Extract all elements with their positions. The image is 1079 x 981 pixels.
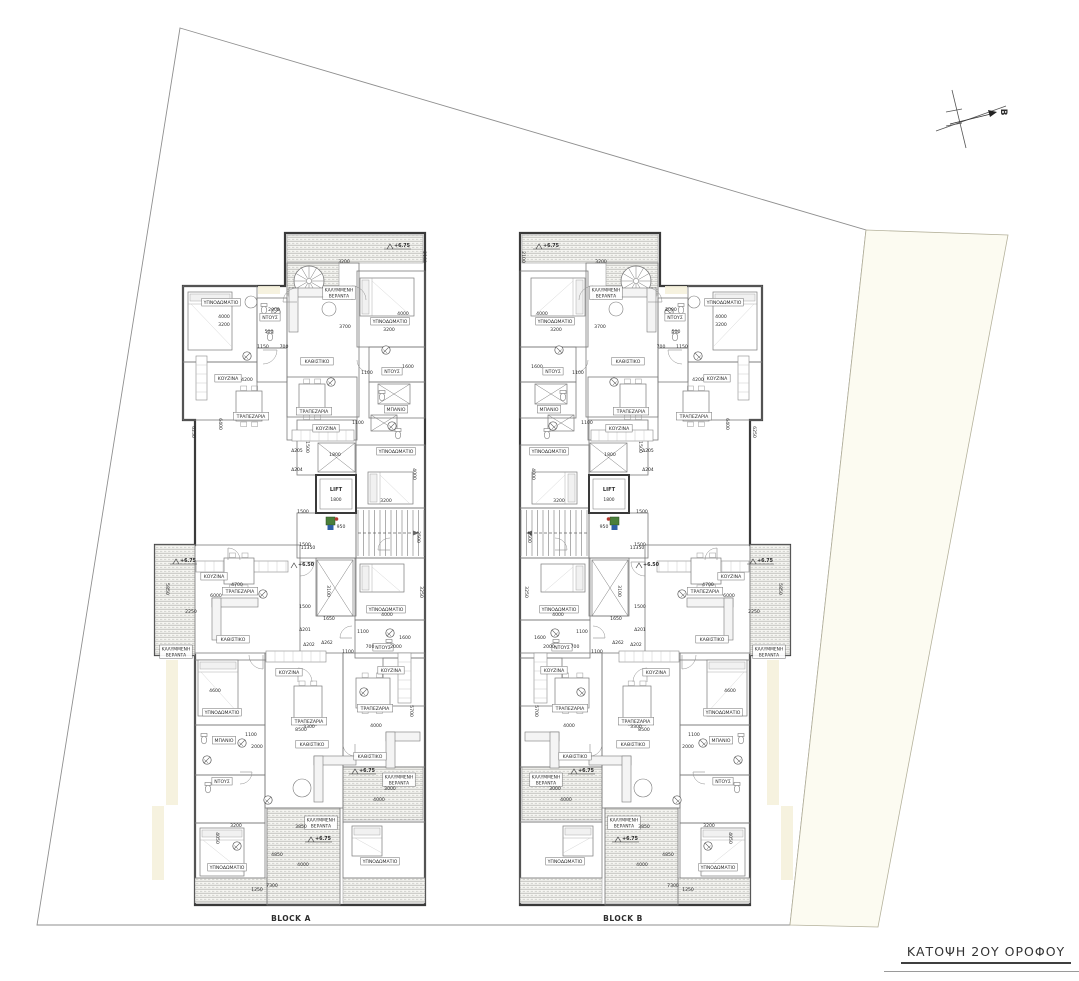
level-text: +6.75	[543, 243, 559, 249]
dimension-text: 4600	[724, 688, 736, 694]
dimension-text: 1150	[676, 344, 688, 350]
veranda-label: ΚΑΛΥΜΜΕΝΗ	[307, 818, 336, 824]
reference-mark: Δ201	[299, 627, 311, 633]
dimension-text: 3200	[703, 823, 715, 829]
room-label: ΝΤΟΥΣ	[667, 315, 683, 321]
wc-fixture	[201, 736, 206, 744]
dimension-text: 4700	[702, 582, 714, 588]
dimension-text: 3200	[230, 823, 242, 829]
veranda-label: ΚΑΛΥΜΜΕΝΗ	[610, 818, 639, 824]
veranda-label: ΒΕΡΑΝΤΑ	[329, 294, 349, 300]
reference-mark: Δ202	[630, 642, 642, 648]
room-label: ΝΤΟΥΣ	[375, 645, 391, 651]
dimension-text: 1500	[636, 509, 648, 515]
dimension-text: 1250	[682, 887, 694, 893]
veranda-label: ΚΑΛΥΜΜΕΝΗ	[532, 775, 561, 781]
room-label: ΥΠΝΟΔΩΜΑΤΙΟ	[204, 710, 240, 716]
room-label: ΝΤΟΥΣ	[554, 645, 570, 651]
dimension-text: 3850	[638, 824, 650, 830]
dimension-text: 1600	[531, 364, 543, 370]
kitchen-counter	[398, 653, 411, 703]
dimension-text: 3300	[303, 724, 315, 730]
reference-mark: Δ205	[642, 448, 654, 454]
wc-fixture	[544, 431, 549, 439]
room-label: ΚΑΘΙΣΤΙΚΟ	[621, 742, 646, 748]
accent-panel	[665, 286, 687, 294]
wc-fixture	[738, 736, 743, 744]
dimension-text: 3300	[630, 724, 642, 730]
room-label: ΥΠΝΟΔΩΜΑΤΙΟ	[378, 449, 414, 455]
room-label: ΚΟΥΖΙΝΑ	[721, 574, 742, 580]
dimension-text: 1650	[323, 616, 335, 622]
level-text: +6.75	[757, 558, 773, 564]
dimension-text: 3200	[383, 327, 395, 333]
dimension-text: 4000	[560, 797, 572, 803]
dimension-text: 4050	[727, 832, 733, 844]
level-text: +6.75	[394, 243, 410, 249]
wc-fixture	[734, 785, 739, 793]
dimension-text: 2500	[526, 531, 532, 543]
wc-fixture	[560, 393, 565, 401]
dimension-text: 1500	[304, 441, 310, 453]
dimension-text: 1150	[257, 344, 269, 350]
dimension-text: 4200	[241, 377, 253, 383]
dimension-text: 1500	[299, 604, 311, 610]
dimension-text: 5700	[408, 705, 414, 717]
room-label: ΚΟΥΖΙΝΑ	[646, 670, 667, 676]
level-text: +6.75	[578, 768, 594, 774]
room-label: ΥΠΝΟΔΩΜΑΤΙΟ	[706, 300, 742, 306]
floor-plan-canvas: ΒΥΠΝΟΔΩΜΑΤΙΟΥΠΝΟΔΩΜΑΤΙΟΥΠΝΟΔΩΜΑΤΙΟΥΠΝΟΔΩ…	[0, 0, 1079, 981]
room-label: ΥΠΝΟΔΩΜΑΤΙΟ	[209, 865, 245, 871]
accent-panel	[166, 660, 178, 805]
room-label: ΥΠΝΟΔΩΜΑΤΙΟ	[547, 859, 583, 865]
north-arrow: Β	[936, 90, 1008, 148]
kitchen-counter	[738, 356, 749, 400]
dimension-text: 7300	[667, 883, 679, 889]
dimension-text: 1100	[352, 420, 364, 426]
dining-table	[623, 686, 651, 720]
block-b-label: BLOCK B	[603, 914, 643, 923]
veranda-hatch	[520, 878, 602, 903]
drawing-title-text: ΚΑΤΟΨΗ 2ΟΥ ΟΡΟΦΟΥ	[901, 944, 1071, 964]
dimension-text: 6250	[751, 426, 757, 438]
dimension-text: 3200	[338, 259, 350, 265]
dimension-text: 6400	[217, 418, 223, 430]
dimension-text: 1600	[399, 635, 411, 641]
dimension-text: 1500	[634, 604, 646, 610]
dimension-text: 6000	[723, 593, 735, 599]
dimension-text: 3250	[418, 586, 424, 598]
dimension-text: 1250	[251, 887, 263, 893]
dimension-text: 1100	[688, 732, 700, 738]
room-label: ΤΡΑΠΕΖΑΡΙΑ	[679, 414, 709, 420]
dimension-text: 4000	[397, 311, 409, 317]
dimension-text: 4000	[218, 314, 230, 320]
dimension-text: 4200	[692, 377, 704, 383]
block-a-label: BLOCK A	[271, 914, 311, 923]
dimension-text: 1100	[361, 370, 373, 376]
dimension-text: 700	[366, 644, 375, 650]
reference-mark: Δ204	[642, 467, 654, 473]
reference-mark: Δ201	[634, 627, 646, 633]
dimension-text: 4600	[209, 688, 221, 694]
room-label: ΝΤΟΥΣ	[214, 779, 230, 785]
level-text: +6.75	[622, 836, 638, 842]
room-label: ΥΠΝΟΔΩΜΑΤΙΟ	[362, 859, 398, 865]
dimension-text: 3700	[339, 324, 351, 330]
dimension-text: 950	[600, 524, 609, 530]
lift-shaft	[589, 475, 629, 513]
room-label: ΚΑΘΙΣΤΙΚΟ	[358, 754, 383, 760]
dimension-text: 2000	[665, 307, 677, 313]
dimension-text: 1800	[604, 452, 616, 458]
wc-fixture	[379, 393, 384, 401]
room-label: ΚΟΥΖΙΝΑ	[381, 668, 402, 674]
dimension-text: 5850	[777, 583, 783, 595]
dimension-text: 3200	[715, 322, 727, 328]
dimension-text: 2000	[268, 307, 280, 313]
kitchen-counter	[534, 653, 547, 703]
level-text: +6.75	[180, 558, 196, 564]
dimension-text: 3200	[595, 259, 607, 265]
dimension-text: 2000	[390, 644, 402, 650]
lift-label: LIFT	[603, 487, 616, 493]
dimension-text: 3200	[553, 498, 565, 504]
dimension-text: 700	[280, 344, 289, 350]
reference-mark: Δ262	[612, 640, 624, 646]
room-label: ΚΟΥΖΙΝΑ	[204, 574, 225, 580]
dining-table	[294, 686, 322, 720]
reference-mark: Δ262	[321, 640, 333, 646]
accent-panel	[258, 286, 280, 294]
room-label: ΤΡΑΠΕΖΑΡΙΑ	[690, 589, 720, 595]
dimension-text: 2100	[520, 251, 526, 263]
lift-shaft	[316, 475, 356, 513]
dimension-text: 1100	[357, 629, 369, 635]
wc-fixture	[395, 431, 400, 439]
dimension-text: 4000	[381, 612, 393, 618]
room-label: ΥΠΝΟΔΩΜΑΤΙΟ	[537, 319, 573, 325]
dimension-text: 4000	[563, 723, 575, 729]
room-label: ΥΠΝΟΔΩΜΑΤΙΟ	[700, 865, 736, 871]
veranda-label: ΒΕΡΑΝΤΑ	[614, 824, 634, 830]
floor-plan-page: ΒΥΠΝΟΔΩΜΑΤΙΟΥΠΝΟΔΩΜΑΤΙΟΥΠΝΟΔΩΜΑΤΙΟΥΠΝΟΔΩ…	[0, 0, 1079, 981]
dimension-text: 4000	[552, 612, 564, 618]
dimension-text: 2000	[251, 744, 263, 750]
north-label: Β	[998, 109, 1008, 116]
dimension-text: 2250	[748, 609, 760, 615]
room-label: ΜΠΑΝΙΟ	[387, 407, 406, 413]
veranda-label: ΒΕΡΑΝΤΑ	[166, 653, 186, 659]
room-label: ΜΠΑΝΙΟ	[540, 407, 559, 413]
north-arrowhead	[988, 110, 997, 117]
dimension-text: 2000	[543, 644, 555, 650]
entrance-plant-icon	[326, 517, 335, 525]
dimension-text: 3250	[523, 586, 529, 598]
title-underline	[884, 971, 1079, 972]
room-label: ΚΑΘΙΣΤΙΚΟ	[305, 359, 330, 365]
veranda-label: ΚΑΛΥΜΜΕΝΗ	[755, 647, 784, 653]
dimension-text: 4850	[271, 852, 283, 858]
drawing-title: ΚΑΤΟΨΗ 2ΟΥ ΟΡΟΦΟΥ	[891, 944, 1079, 964]
room-label: ΜΠΑΝΙΟ	[215, 738, 234, 744]
room-label: ΜΠΑΝΙΟ	[712, 738, 731, 744]
dimension-text: 3700	[594, 324, 606, 330]
veranda-label: ΚΑΛΥΜΜΕΝΗ	[325, 288, 354, 294]
room-label: ΤΡΑΠΕΖΑΡΙΑ	[299, 409, 329, 415]
dimension-text: 3100	[616, 585, 622, 597]
dimension-text: 700	[657, 344, 666, 350]
dimension-text: 1100	[342, 649, 354, 655]
dimension-text: 2500	[415, 531, 421, 543]
wc-fixture	[205, 785, 210, 793]
room-label: ΤΡΑΠΕΖΑΡΙΑ	[616, 409, 646, 415]
dimension-text: 3000	[384, 786, 396, 792]
dimension-text: 3200	[218, 322, 230, 328]
dining-table	[224, 558, 254, 584]
room-label: ΚΟΥΖΙΝΑ	[218, 376, 239, 382]
dimension-text: 7300	[266, 883, 278, 889]
dimension-text: 2000	[682, 744, 694, 750]
entrance-plant-icon	[610, 517, 619, 525]
dimension-text: 1100	[245, 732, 257, 738]
room-label: ΤΡΑΠΕΖΑΡΙΑ	[225, 589, 255, 595]
dimension-text: 500	[672, 329, 681, 335]
room-label: ΚΟΥΖΙΝΑ	[544, 668, 565, 674]
wc-fixture	[261, 306, 266, 314]
dimension-text: 6250	[190, 426, 196, 438]
room-label: ΚΟΥΖΙΝΑ	[609, 426, 630, 432]
veranda-label: ΚΑΛΥΜΜΕΝΗ	[592, 288, 621, 294]
dimension-text: 1600	[534, 635, 546, 641]
veranda-label: ΒΕΡΑΝΤΑ	[536, 781, 556, 787]
dimension-text: 1100	[576, 629, 588, 635]
dimension-text: 1100	[572, 370, 584, 376]
veranda-label: ΒΕΡΑΝΤΑ	[759, 653, 779, 659]
dimension-text: 1500	[299, 542, 311, 548]
room-label: ΥΠΝΟΔΩΜΑΤΙΟ	[531, 449, 567, 455]
room-label: ΚΑΘΙΣΤΙΚΟ	[221, 637, 246, 643]
lift-label: LIFT	[330, 487, 343, 493]
dimension-text: 1800	[330, 497, 341, 503]
dimension-text: 4000	[715, 314, 727, 320]
dimension-text: 500	[265, 329, 274, 335]
dimension-text: 4000	[373, 797, 385, 803]
veranda-label: ΒΕΡΑΝΤΑ	[311, 824, 331, 830]
kitchen-counter	[196, 356, 207, 400]
room-label: ΥΠΝΟΔΩΜΑΤΙΟ	[705, 710, 741, 716]
dimension-text: 2100	[421, 251, 427, 263]
dimension-text: 4700	[231, 582, 243, 588]
dimension-text: 1500	[634, 542, 646, 548]
room-label: ΤΡΑΠΕΖΑΡΙΑ	[360, 706, 390, 712]
dimension-text: 700	[571, 644, 580, 650]
room-label: ΥΠΝΟΔΩΜΑΤΙΟ	[203, 300, 239, 306]
dimension-text: 4000	[411, 468, 417, 480]
dimension-text: 4850	[662, 852, 674, 858]
room-label: ΝΤΟΥΣ	[545, 369, 561, 375]
wc-fixture	[678, 306, 683, 314]
dimension-text: 5850	[164, 583, 170, 595]
level-text: +6.75	[315, 836, 331, 842]
dimension-text: 4000	[370, 723, 382, 729]
dimension-text: 4000	[636, 862, 648, 868]
veranda-label: ΒΕΡΑΝΤΑ	[596, 294, 616, 300]
dimension-text: 3850	[295, 824, 307, 830]
room-label: ΝΤΟΥΣ	[262, 315, 278, 321]
dining-table	[691, 558, 721, 584]
dimension-text: 1800	[329, 452, 341, 458]
dimension-text: 4000	[530, 468, 536, 480]
dimension-text: 3200	[380, 498, 392, 504]
dimension-text: 1500	[297, 509, 309, 515]
dimension-text: 5700	[533, 705, 539, 717]
room-label: ΚΑΘΙΣΤΙΚΟ	[700, 637, 725, 643]
level-text: +6.50	[298, 562, 315, 568]
dimension-text: 4050	[214, 832, 220, 844]
accent-panel	[781, 806, 793, 880]
dimension-text: 6400	[724, 418, 730, 430]
reference-mark: Δ204	[291, 467, 303, 473]
room-label: ΥΠΝΟΔΩΜΑΤΙΟ	[372, 319, 408, 325]
dimension-text: 1100	[591, 649, 603, 655]
dimension-text: 2250	[185, 609, 197, 615]
room-label: ΝΤΟΥΣ	[384, 369, 400, 375]
dimension-text: 4000	[536, 311, 548, 317]
room-label: ΚΟΥΖΙΝΑ	[279, 670, 300, 676]
room-label: ΝΤΟΥΣ	[715, 779, 731, 785]
dimension-text: 6000	[210, 593, 222, 599]
dimension-text: 1100	[581, 420, 593, 426]
veranda-label: ΚΑΛΥΜΜΕΝΗ	[162, 647, 191, 653]
room-label: ΤΡΑΠΕΖΑΡΙΑ	[555, 706, 585, 712]
reference-mark: Δ202	[303, 642, 315, 648]
room-label: ΚΑΘΙΣΤΙΚΟ	[300, 742, 325, 748]
room-label: ΚΟΥΖΙΝΑ	[707, 376, 728, 382]
dimension-text: 4000	[297, 862, 309, 868]
dimension-text: 1800	[603, 497, 614, 503]
level-text: +6.50	[643, 562, 660, 568]
dimension-text: 1600	[402, 364, 414, 370]
accent-panel	[152, 806, 164, 880]
reference-mark: Δ205	[291, 448, 303, 454]
dimension-text: 1650	[610, 616, 622, 622]
veranda-label: ΚΑΛΥΜΜΕΝΗ	[385, 775, 414, 781]
dimension-text: 3200	[550, 327, 562, 333]
veranda-hatch	[343, 878, 425, 903]
veranda-label: ΒΕΡΑΝΤΑ	[389, 781, 409, 787]
accent-panel	[767, 660, 779, 805]
room-label: ΚΑΘΙΣΤΙΚΟ	[563, 754, 588, 760]
room-label: ΚΑΘΙΣΤΙΚΟ	[616, 359, 641, 365]
dimension-text: 3100	[325, 585, 331, 597]
room-label: ΚΟΥΖΙΝΑ	[316, 426, 337, 432]
dimension-text: 950	[337, 524, 346, 530]
level-text: +6.75	[359, 768, 375, 774]
dimension-text: 3000	[549, 786, 561, 792]
room-label: ΤΡΑΠΕΖΑΡΙΑ	[236, 414, 266, 420]
